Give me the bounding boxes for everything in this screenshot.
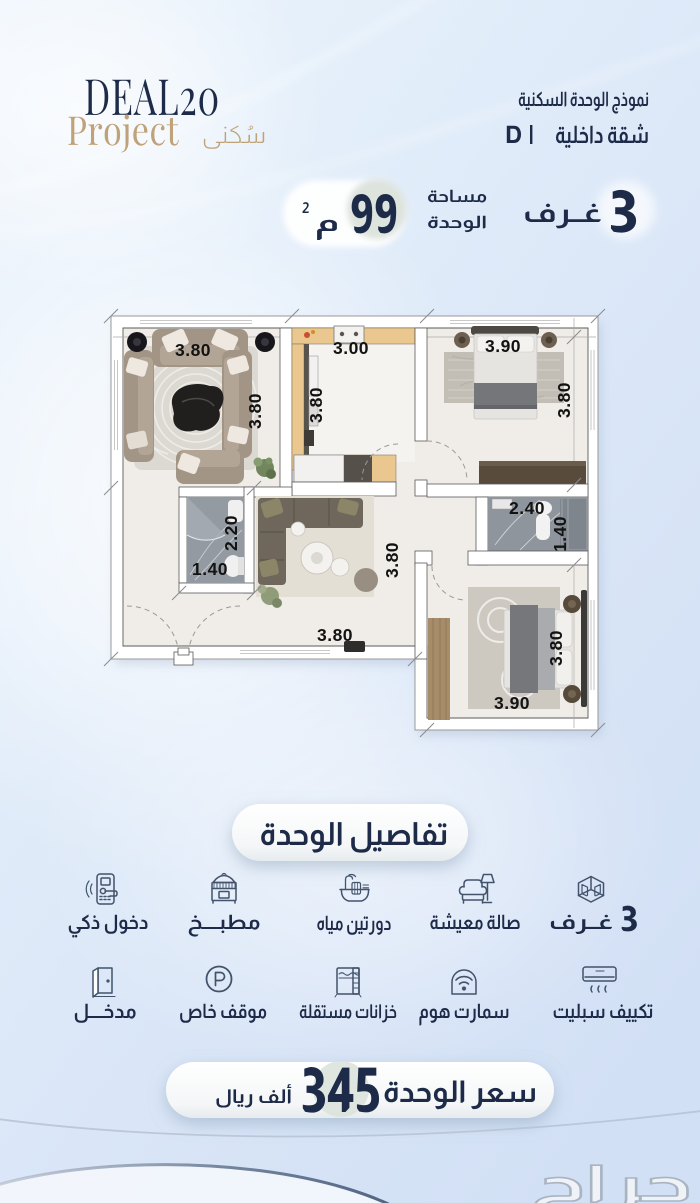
svg-text:3.80: 3.80 [306, 387, 326, 423]
svg-text:2.40: 2.40 [509, 498, 545, 518]
svg-text:3.80: 3.80 [175, 340, 211, 360]
svg-text:3.80: 3.80 [554, 382, 574, 418]
svg-text:3.00: 3.00 [333, 338, 369, 358]
svg-text:1.40: 1.40 [192, 559, 228, 579]
svg-text:3.90: 3.90 [494, 693, 530, 713]
svg-text:3.90: 3.90 [485, 336, 521, 356]
svg-text:2.20: 2.20 [221, 515, 241, 551]
svg-text:3.80: 3.80 [546, 630, 566, 666]
svg-text:3.80: 3.80 [245, 393, 265, 429]
svg-text:1.40: 1.40 [550, 516, 570, 552]
svg-text:3.80: 3.80 [382, 542, 402, 578]
